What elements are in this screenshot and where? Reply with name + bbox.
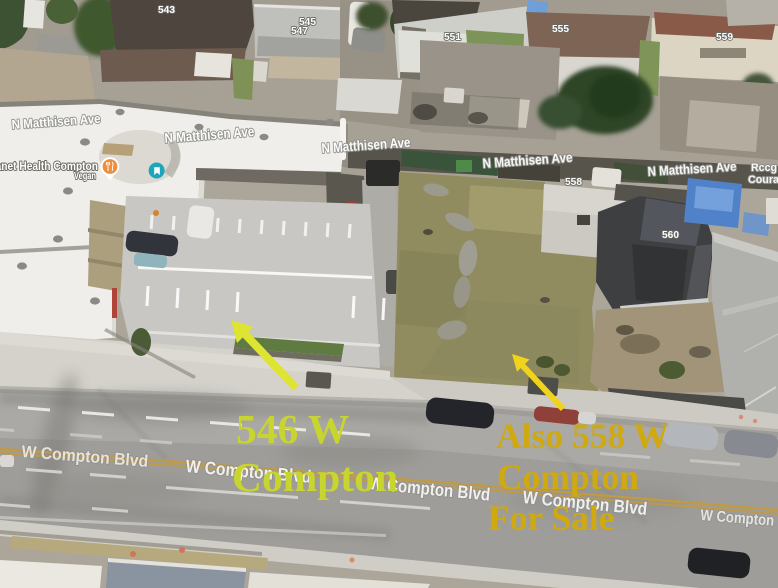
svg-text:Compton: Compton [232, 454, 398, 500]
svg-text:Also 558 W: Also 558 W [496, 416, 669, 456]
svg-text:546 W: 546 W [236, 406, 349, 452]
svg-text:547: 547 [291, 25, 308, 37]
svg-text:555: 555 [552, 23, 569, 35]
svg-text:Vegan: Vegan [74, 171, 96, 182]
svg-text:Rccg: Rccg [751, 162, 777, 174]
svg-text:For Sale: For Sale [488, 498, 615, 538]
svg-text:551: 551 [444, 31, 461, 43]
svg-text:560: 560 [662, 229, 679, 241]
svg-text:Coura: Coura [748, 174, 778, 186]
svg-text:Compton: Compton [497, 457, 639, 497]
svg-text:559: 559 [716, 31, 733, 43]
svg-text:543: 543 [158, 4, 175, 16]
svg-text:558: 558 [565, 176, 582, 188]
